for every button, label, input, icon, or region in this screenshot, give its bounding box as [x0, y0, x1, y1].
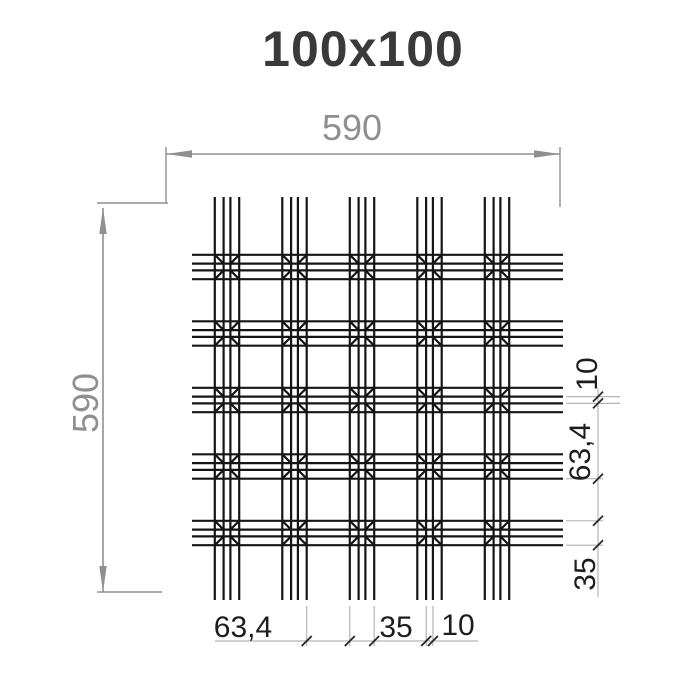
grid-pattern [192, 197, 563, 600]
dimension-right-opening: 63,4 [565, 402, 597, 502]
dimension-right-web: 35 [570, 524, 602, 624]
page-title: 100x100 [163, 20, 563, 78]
dimension-bottom-web: 35 [366, 612, 426, 644]
dimension-bottom-opening: 63,4 [203, 612, 283, 644]
drawing-canvas: 100x100 590 590 63,4 35 10 10 63,4 35 [0, 0, 700, 700]
dimension-left-height: 590 [68, 353, 104, 453]
dimension-top-width: 590 [300, 110, 404, 146]
dimension-bottom-profile: 10 [428, 610, 488, 642]
